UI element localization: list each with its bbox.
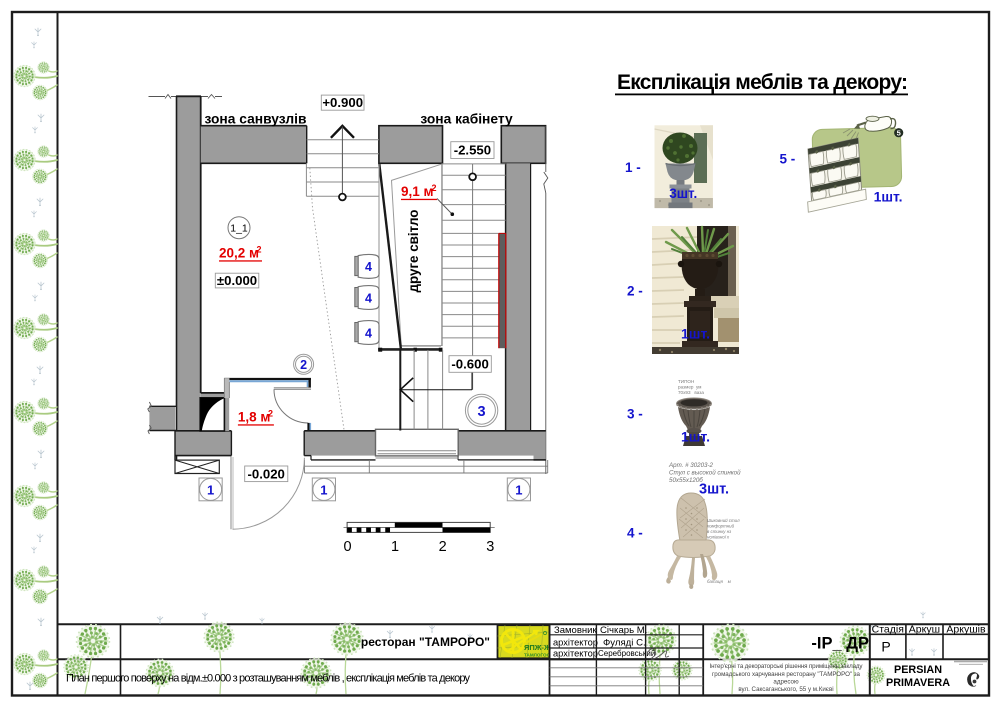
svg-text:ТАМЛОГОС: ТАМЛОГОС [524, 653, 551, 658]
svg-text:Аркуш: Аркуш [909, 624, 940, 636]
svg-text:батаця м: батаця м [707, 579, 731, 584]
svg-text:2: 2 [439, 539, 447, 555]
svg-text:3: 3 [478, 404, 486, 420]
svg-text:ЯПЖ-Ж: ЯПЖ-Ж [524, 643, 551, 652]
svg-text:Інтер'єрні та декораторські рі: Інтер'єрні та декораторські рішення прим… [710, 663, 864, 670]
svg-text:-ІР_ ДР: -ІР_ ДР [811, 635, 869, 653]
svg-text:70х93 ваза: 70х93 ваза [678, 390, 704, 395]
svg-text:Замовник: Замовник [554, 625, 597, 636]
svg-text:архітектор: архітектор [553, 649, 598, 659]
svg-text:2: 2 [257, 245, 262, 255]
svg-text:PERSIAN: PERSIAN [894, 664, 942, 676]
svg-text:5 -: 5 - [780, 152, 796, 167]
svg-text:Шиковний стил: Шиковний стил [707, 518, 740, 523]
svg-text:1: 1 [391, 539, 399, 555]
svg-text:Січкарь М.: Січкарь М. [600, 625, 647, 636]
svg-text:0: 0 [343, 539, 351, 555]
svg-text:Стадія: Стадія [872, 624, 904, 636]
svg-text:2: 2 [300, 358, 307, 372]
svg-text:4 -: 4 - [627, 526, 643, 541]
svg-text:±0.000: ±0.000 [217, 273, 257, 288]
svg-text:1_1: 1_1 [230, 223, 248, 235]
svg-text:+0.900: +0.900 [322, 95, 363, 110]
svg-text:ноліваної х: ноліваної х [707, 535, 730, 540]
svg-text:1: 1 [515, 482, 522, 497]
svg-text:комфортний: комфортний [707, 524, 735, 529]
svg-text:вул. Саксаганського, 55 у м.Ки: вул. Саксаганського, 55 у м.Києві [738, 686, 833, 693]
svg-text:Стул с высокой спинкой: Стул с высокой спинкой [669, 470, 741, 477]
svg-text:1: 1 [207, 482, 214, 497]
svg-text:4: 4 [365, 260, 372, 274]
svg-text:-2.550: -2.550 [454, 143, 491, 158]
svg-text:ТИПОН: ТИПОН [678, 379, 694, 384]
svg-text:PRIMAVERA: PRIMAVERA [886, 677, 950, 689]
svg-text:2 -: 2 - [627, 284, 643, 299]
svg-text:2: 2 [268, 409, 273, 419]
svg-text:Фуляді С.: Фуляді С. [603, 638, 646, 649]
svg-text:1шт.: 1шт. [681, 326, 710, 342]
svg-text:размер ум: размер ум [678, 385, 701, 390]
svg-text:громадського харчування рестор: громадського харчування ресторану "ТАМРО… [712, 671, 861, 678]
svg-text:Аркушів: Аркушів [946, 624, 986, 636]
svg-text:4: 4 [365, 326, 372, 340]
svg-text:4: 4 [365, 291, 372, 305]
svg-text:1,8 м: 1,8 м [238, 410, 271, 425]
svg-text:1: 1 [320, 482, 327, 497]
svg-text:Арт. # 30203-2: Арт. # 30203-2 [668, 462, 714, 469]
svg-text:Р: Р [881, 639, 890, 655]
svg-text:3шт.: 3шт. [669, 186, 697, 201]
svg-text:5: 5 [897, 129, 901, 138]
svg-text:3 -: 3 - [627, 407, 643, 422]
svg-text:зона кабінету: зона кабінету [420, 112, 513, 127]
svg-text:ресторан "ТАМРОРО": ресторан "ТАМРОРО" [361, 635, 490, 649]
svg-text:в стинку нз: в стинку нз [707, 529, 731, 534]
svg-text:-0.600: -0.600 [451, 357, 488, 372]
svg-text:зона санвузлів: зона санвузлів [204, 112, 306, 127]
svg-text:1шт.: 1шт. [874, 189, 903, 205]
svg-text:Експлікація меблів та декору:: Експлікація меблів та декору: [617, 71, 908, 94]
svg-text:1шт.: 1шт. [681, 429, 710, 445]
svg-text:9,1 м: 9,1 м [401, 184, 434, 199]
svg-text:Серебровський: Серебровський [598, 649, 655, 658]
svg-text:3: 3 [486, 539, 494, 555]
svg-text:адресою: адресою [773, 679, 799, 686]
svg-text:-0.020: -0.020 [247, 467, 284, 482]
svg-text:1 -: 1 - [625, 160, 641, 175]
svg-text:3шт.: 3шт. [699, 482, 729, 498]
svg-text:План першого поверху на відм.±: План першого поверху на відм.±0.000 з ро… [66, 673, 471, 685]
svg-text:2: 2 [432, 183, 437, 193]
svg-text:20,2 м: 20,2 м [219, 246, 259, 261]
svg-text:архітектор: архітектор [553, 638, 598, 648]
svg-text:друге світло: друге світло [406, 210, 421, 293]
